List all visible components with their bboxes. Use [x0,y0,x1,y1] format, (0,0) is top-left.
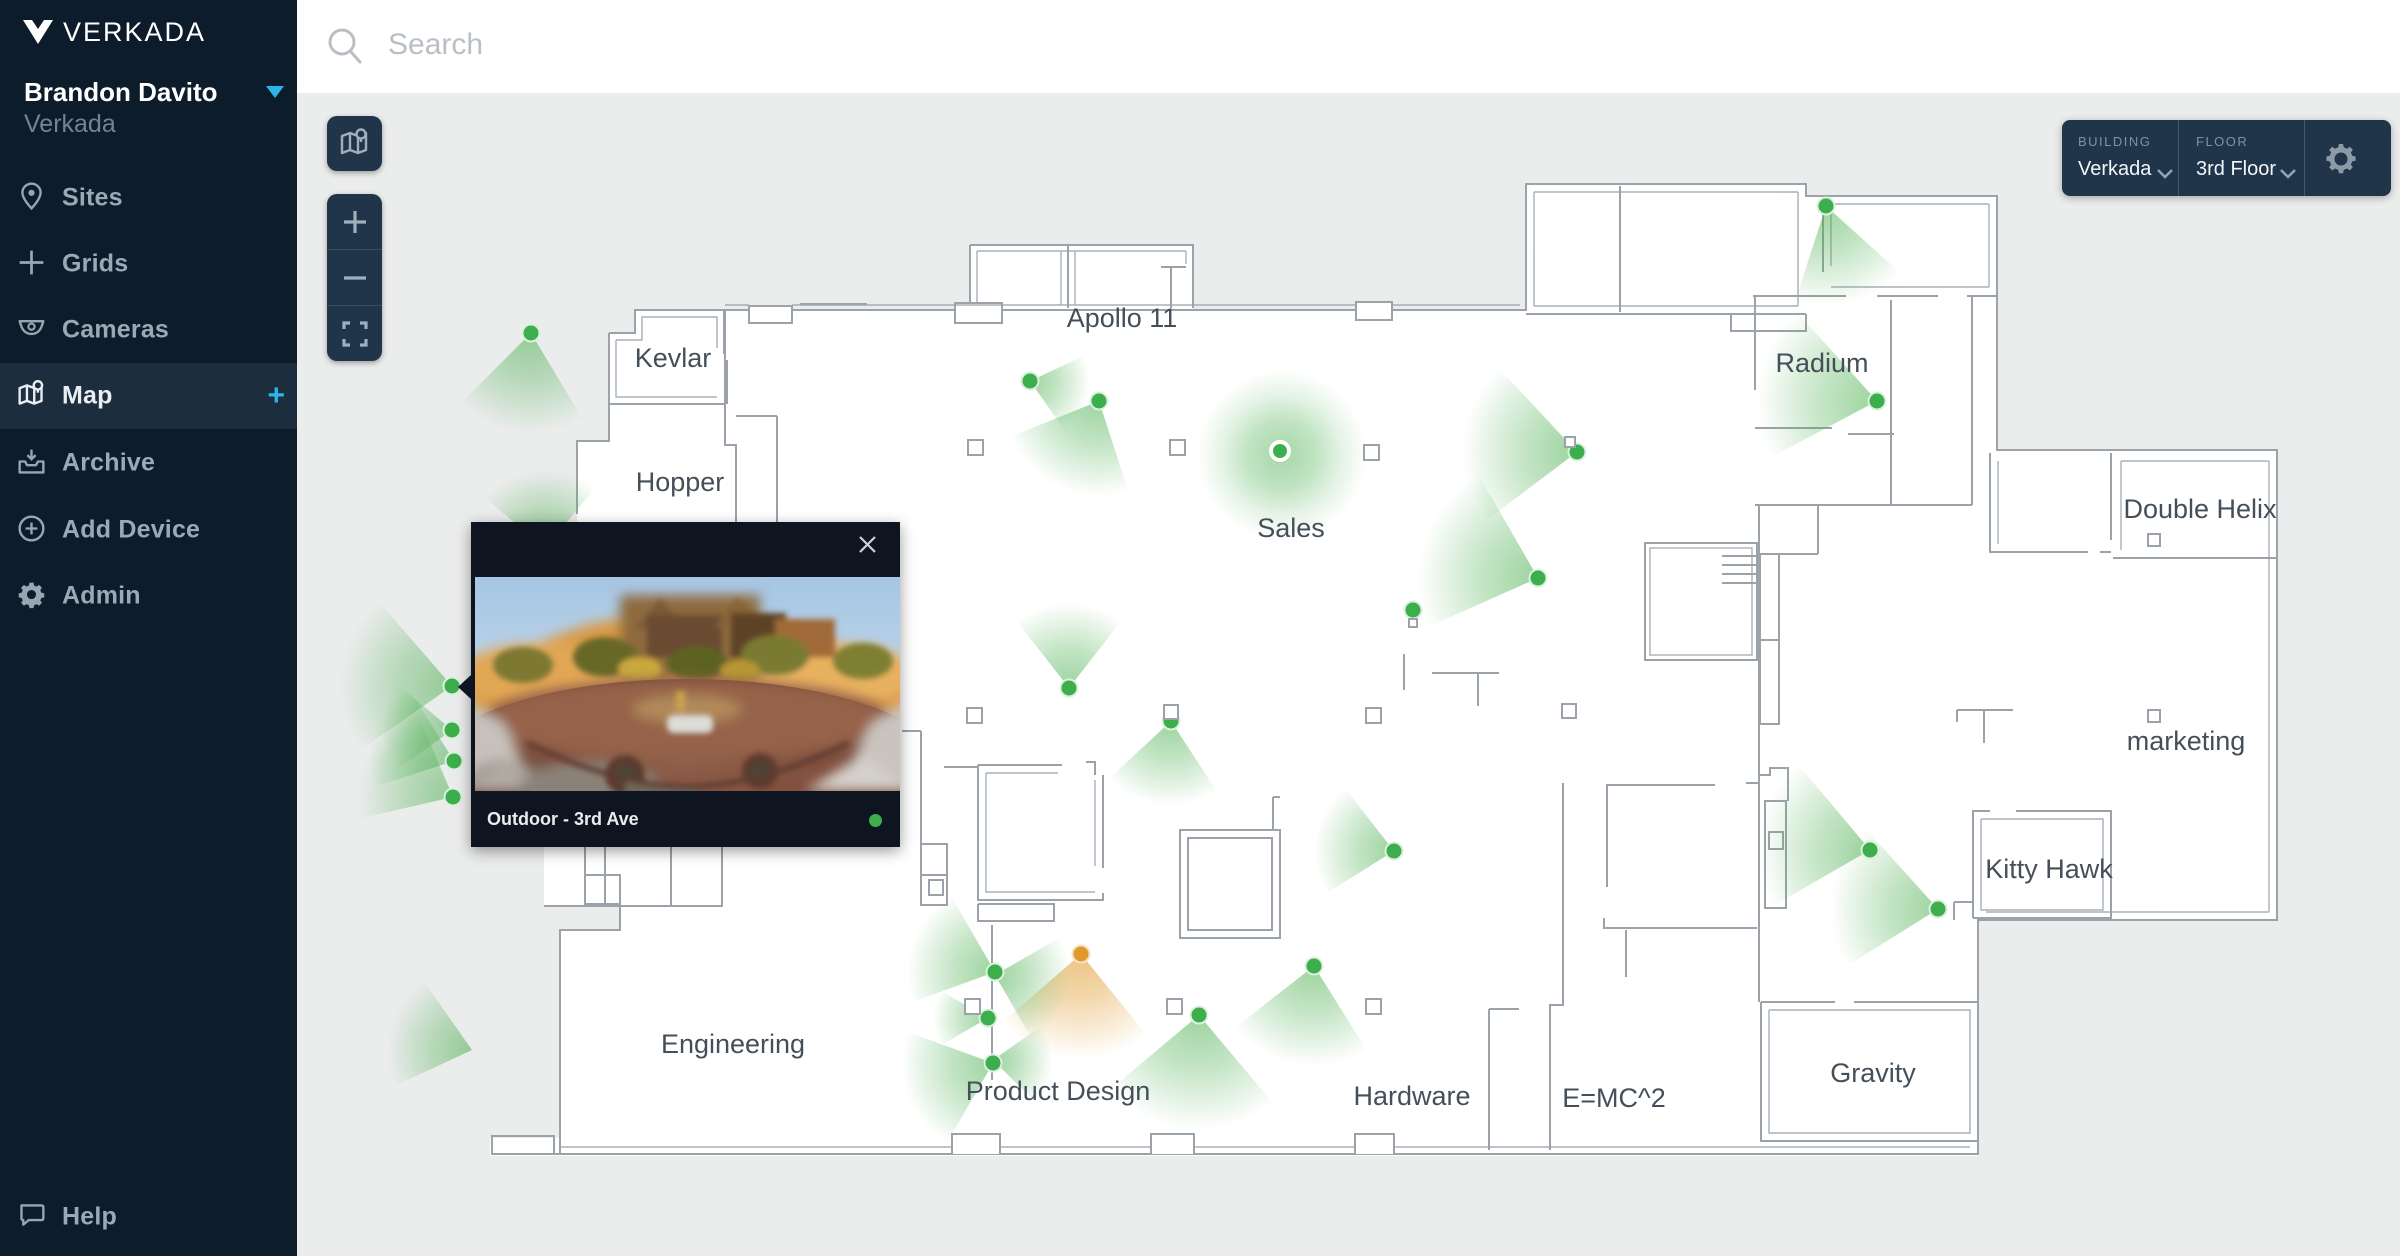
svg-text:marketing: marketing [2127,726,2246,756]
svg-text:Engineering: Engineering [661,1029,805,1059]
svg-text:Hopper: Hopper [636,467,725,497]
svg-text:Gravity: Gravity [1830,1058,1916,1088]
svg-text:Apollo 11: Apollo 11 [1067,303,1178,333]
svg-text:Product Design: Product Design [966,1076,1151,1106]
svg-text:Hardware: Hardware [1353,1081,1470,1111]
svg-text:Radium: Radium [1775,348,1868,378]
svg-text:Sales: Sales [1257,513,1325,543]
svg-text:E=MC^2: E=MC^2 [1562,1083,1665,1113]
svg-text:Kitty Hawk: Kitty Hawk [1985,854,2113,884]
svg-text:Kevlar: Kevlar [635,343,712,373]
svg-text:Double Helix: Double Helix [2123,494,2277,524]
